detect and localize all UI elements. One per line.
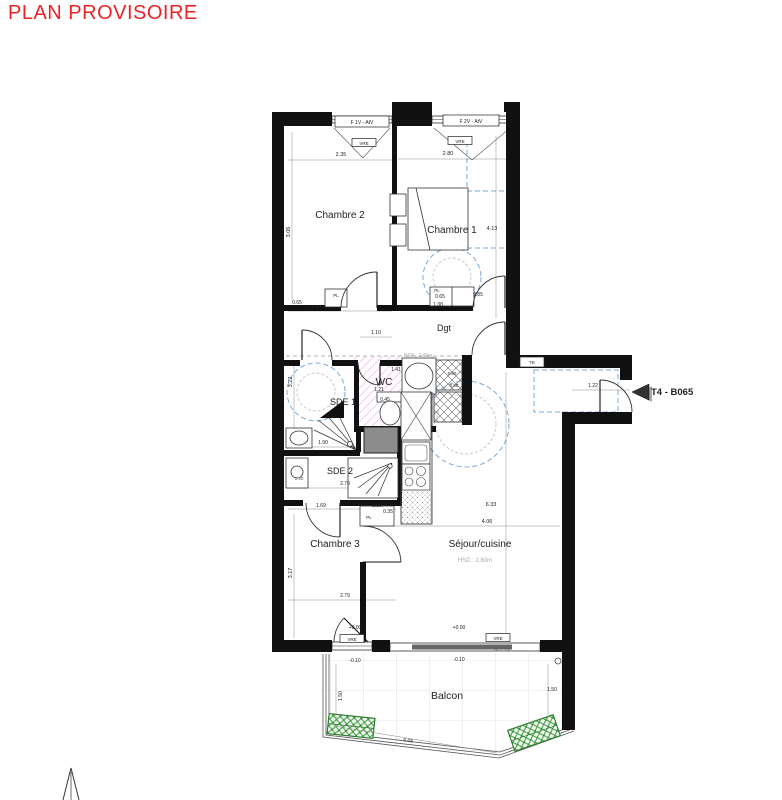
label-hsp: HSP : 2.49m [404,353,432,359]
door-arc-chambre3 [363,526,401,562]
washbasin [405,363,433,389]
level-balcon-right: -0.10 [453,657,465,663]
unit-label: T4 - B065 [651,387,694,398]
pl-label-chambre1: PL [434,288,440,293]
nightstand [390,194,406,216]
north-arrow [63,768,79,800]
dim-chambre3-height: 3.17 [288,568,294,579]
door-arc-dgt [472,322,505,355]
toilet-bowl [380,401,400,425]
dim-sde2-width: 2.79 [340,481,350,487]
dim-chambre2-width: 2.35 [336,152,347,158]
dim-pl-chambre2-a: 0.65 [292,300,302,306]
entry-arrow-icon [632,384,649,400]
floorplan-page: PLAN PROVISOIRE [0,0,782,800]
room-label-dgt: Dgt [437,323,452,333]
dim-pl-chambre1-a: 0.65 [435,294,445,300]
dim-pl-chambre1-b: 1.38 [433,302,443,308]
nightstand [390,224,406,246]
floorplan-drawing: F 1V - AtVF 2V - AtVVREVREChambre 2Chamb… [0,0,782,800]
dim-sejour-height: 6.33 [486,502,497,508]
level-balcon-left: -0.10 [349,658,361,664]
pl-label-chambre2: PL [333,293,339,298]
dim-sde1-width: 1.90 [318,440,328,446]
vre-window-2: VRE [455,139,464,144]
label-rec: REC 2V [494,647,510,652]
door-arc-sde1 [302,330,332,360]
window-label-f1v: F 1V - AtV [351,120,374,126]
dim-wc-a: 1.41 [391,367,401,373]
room-label-chambre2: Chambre 2 [315,210,365,221]
shower-drain [388,464,392,468]
window-label-f2v: F 2V - AtV [460,119,483,125]
placard-chambre2 [325,289,347,307]
entry-marker [632,384,652,402]
level-chambre3: +0.00 [349,625,362,631]
dim-pl-chambre1-c: 0.85 [473,292,483,298]
shower-drain [348,442,353,447]
room-label-chambre3: Chambre 3 [310,539,360,550]
dim-sejour-width: 4.06 [482,519,493,525]
dim-sde2-basin: 1.30 [295,476,304,481]
dim-chambre3-width: 2.79 [340,593,350,599]
dim-hall-b: 1.10 [372,503,382,509]
door-arc-entry [600,380,632,412]
dim-entry-door: 1.22 [588,383,598,389]
room-label-sejour: Séjour/cuisine [449,539,512,550]
room-label-sde1: SDE 1 [330,397,356,407]
label-hsd: HSD : 2.60m [458,558,492,564]
dim-sde1-height: 3.22 [288,377,294,388]
vre-window-3: VRE [347,637,356,642]
dim-hall-c: 0.35 [383,509,393,515]
dim-chambre1-height: 4.13 [487,226,498,232]
room-label-chambre1: Chambre 1 [427,225,477,236]
duct [364,427,398,453]
dim-balcon-right: 1.50 [547,687,557,693]
dim-chambre1-width: 2.80 [443,151,454,157]
pl-label-chambre3: PL [366,515,372,520]
label-te: TE [529,360,535,365]
technical-shaft [434,392,462,422]
dim-pl-chambre2-b: 1.40 [311,305,321,311]
bed [408,188,468,250]
dim-balcon-left: 1.50 [338,691,344,701]
vre-window-4: VRE [493,636,502,641]
dim-shaft-b: 0.60 [450,383,459,388]
dim-hall-a: 1.69 [316,503,326,509]
room-label-balcon: Balcon [431,690,463,702]
dim-wc-c: 0.45 [380,397,390,403]
dim-chambre2-height: 3.06 [286,227,292,238]
balcony [322,652,575,758]
ceiling-zone-entry [534,370,618,412]
vre-window-1: VRE [359,141,368,146]
room-label-sde2: SDE 2 [327,466,353,476]
level-sejour: +0.00 [453,625,466,631]
drain-icon [555,658,561,664]
kitchen-counter [401,490,431,524]
dim-dgt-width: 1.10 [371,330,381,336]
room-label-wc: WC [376,377,393,388]
dim-shaft-a: 0.90 [448,371,457,376]
